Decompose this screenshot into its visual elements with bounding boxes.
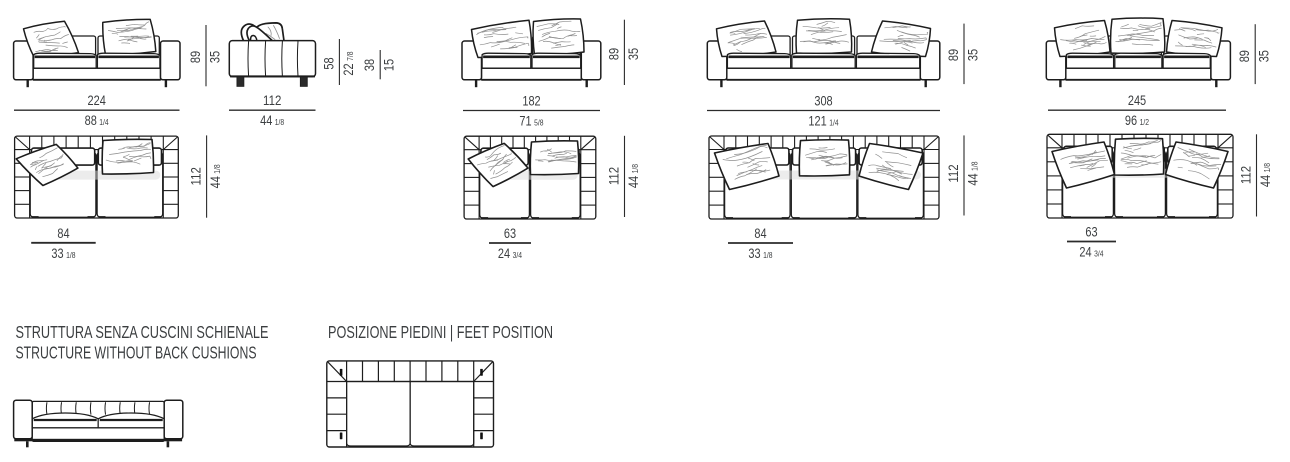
svg-text:3/4: 3/4 — [513, 250, 523, 260]
svg-text:24: 24 — [1079, 245, 1092, 260]
svg-text:58: 58 — [321, 57, 336, 69]
svg-text:33: 33 — [748, 246, 760, 261]
svg-text:1/2: 1/2 — [1140, 117, 1150, 127]
svg-text:63: 63 — [504, 226, 516, 241]
svg-text:1/8: 1/8 — [763, 250, 773, 260]
svg-text:89: 89 — [946, 49, 961, 61]
svg-text:96: 96 — [1125, 113, 1137, 128]
svg-text:88: 88 — [85, 113, 97, 128]
svg-text:33: 33 — [51, 246, 63, 261]
svg-text:15: 15 — [382, 59, 397, 71]
svg-text:38: 38 — [362, 59, 377, 71]
svg-text:1/8: 1/8 — [275, 117, 285, 127]
svg-text:308: 308 — [814, 94, 832, 109]
svg-text:35: 35 — [965, 49, 980, 61]
svg-text:1/8: 1/8 — [66, 250, 76, 260]
svg-text:35: 35 — [626, 48, 641, 60]
svg-text:22: 22 — [341, 63, 356, 75]
svg-text:44: 44 — [1258, 174, 1273, 187]
svg-text:71: 71 — [519, 114, 531, 129]
svg-text:1/8: 1/8 — [212, 164, 222, 174]
svg-text:112: 112 — [946, 164, 961, 182]
svg-text:84: 84 — [57, 226, 70, 241]
svg-text:24: 24 — [498, 246, 511, 261]
svg-text:3/4: 3/4 — [1094, 249, 1104, 259]
svg-text:STRUCTURE WITHOUT BACK CUSHION: STRUCTURE WITHOUT BACK CUSHIONS — [16, 343, 257, 363]
svg-text:89: 89 — [188, 51, 203, 63]
svg-text:245: 245 — [1128, 93, 1146, 108]
svg-text:44: 44 — [208, 176, 223, 189]
svg-text:112: 112 — [263, 93, 281, 108]
svg-text:63: 63 — [1085, 225, 1097, 240]
svg-text:1/4: 1/4 — [829, 118, 839, 128]
svg-text:89: 89 — [606, 48, 621, 60]
svg-text:44: 44 — [965, 173, 980, 186]
svg-text:POSIZIONE PIEDINI | FEET POSIT: POSIZIONE PIEDINI | FEET POSITION — [328, 322, 553, 342]
svg-text:7/8: 7/8 — [345, 51, 355, 61]
svg-text:5/8: 5/8 — [534, 118, 544, 128]
svg-text:44: 44 — [260, 113, 273, 128]
svg-text:112: 112 — [189, 167, 204, 185]
svg-text:121: 121 — [808, 114, 826, 129]
svg-text:STRUTTURA SENZA CUSCINI SCHIEN: STRUTTURA SENZA CUSCINI SCHIENALE — [16, 322, 269, 342]
svg-text:182: 182 — [522, 94, 540, 109]
svg-text:84: 84 — [754, 226, 767, 241]
svg-text:1/4: 1/4 — [99, 117, 109, 127]
svg-text:89: 89 — [1237, 50, 1252, 62]
svg-text:1/8: 1/8 — [969, 161, 979, 171]
svg-text:35: 35 — [207, 51, 222, 63]
svg-text:35: 35 — [1257, 50, 1272, 62]
svg-text:112: 112 — [607, 167, 622, 185]
svg-text:1/8: 1/8 — [630, 164, 640, 174]
svg-text:1/8: 1/8 — [1262, 163, 1272, 173]
svg-text:112: 112 — [1239, 166, 1254, 184]
svg-text:44: 44 — [626, 175, 641, 188]
svg-text:224: 224 — [88, 93, 107, 108]
